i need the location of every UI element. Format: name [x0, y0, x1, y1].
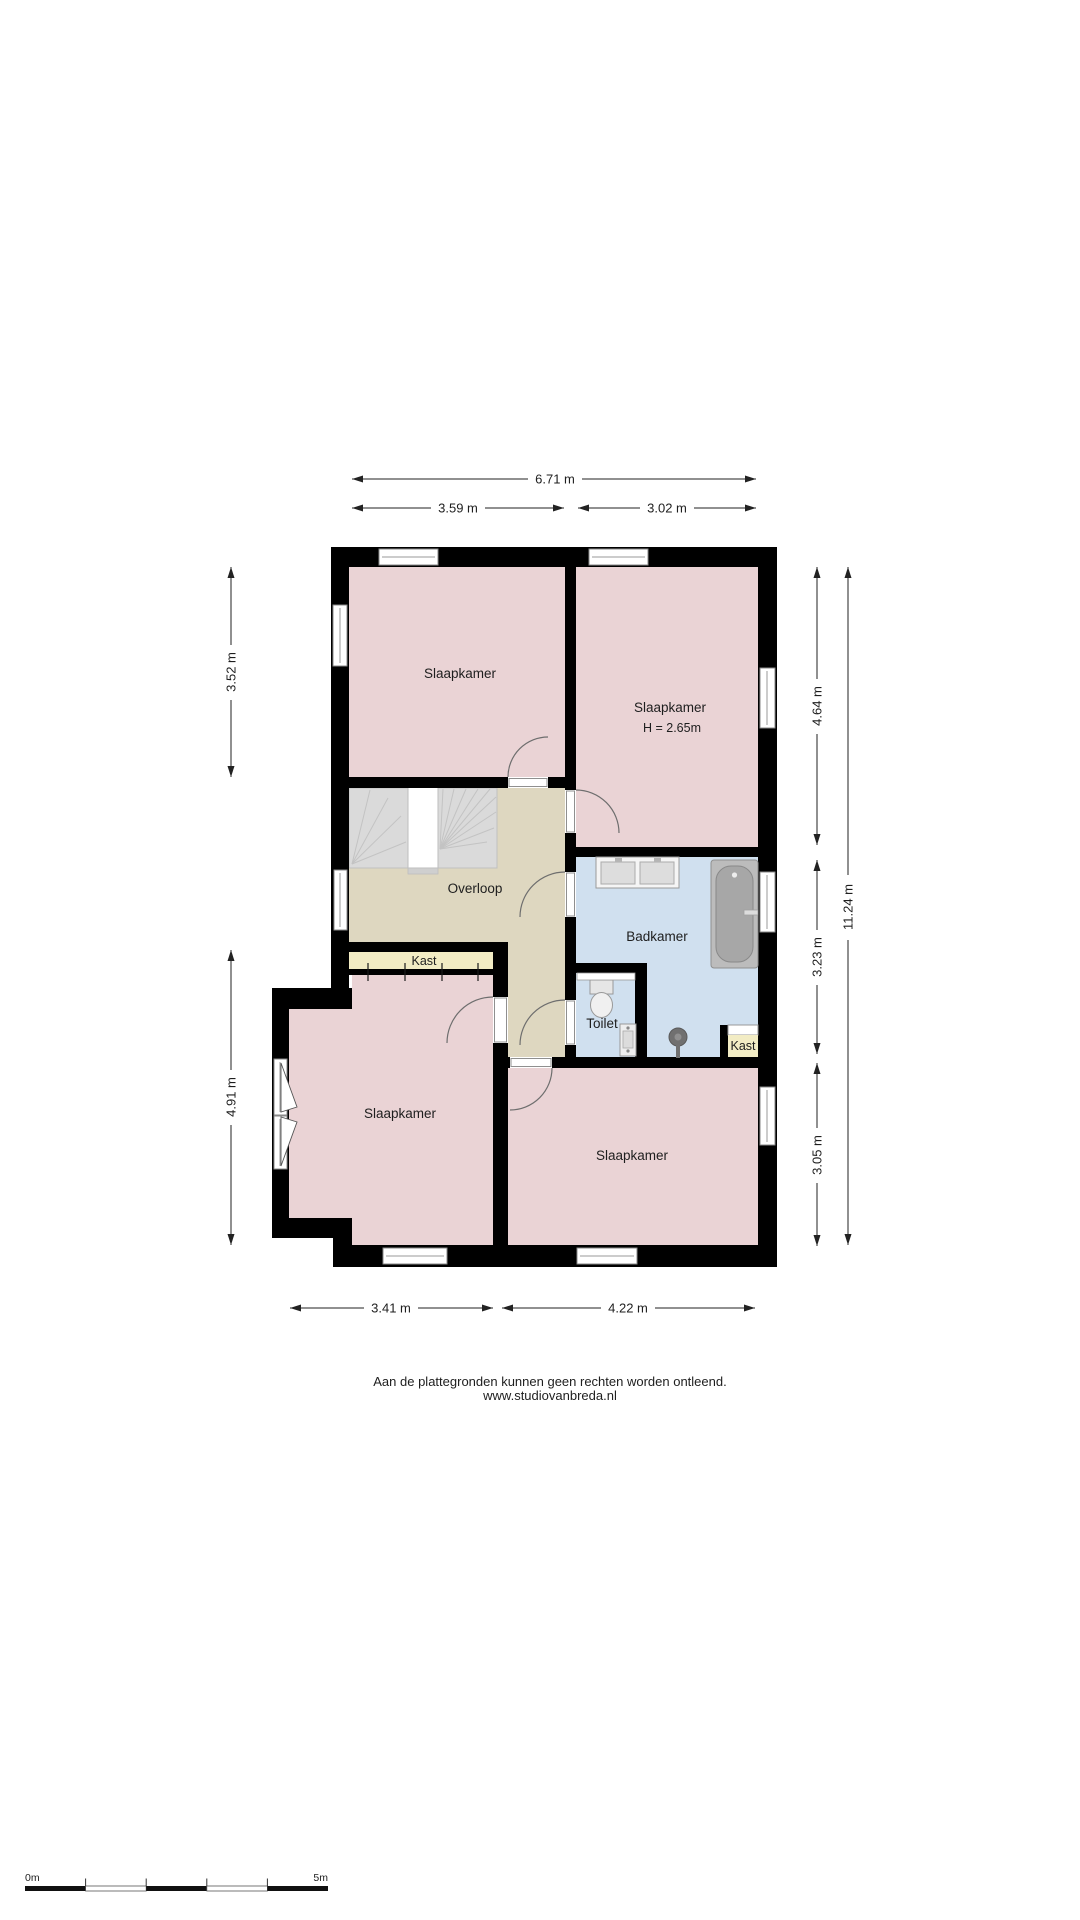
room-label-closet-hall: Kast — [411, 954, 437, 968]
window — [760, 668, 775, 728]
wall-toilet-top — [565, 963, 647, 973]
footer-website: www.studiovanbreda.nl — [482, 1388, 617, 1403]
scale-bar-end-label: 5m — [313, 1872, 328, 1884]
room-label-closet-bathroom: Kast — [730, 1039, 756, 1053]
window — [577, 1248, 637, 1264]
dimension-label-top-left: 3.59 m — [438, 501, 478, 516]
wall-toilet-right — [635, 963, 647, 1068]
window — [760, 872, 775, 932]
room-label-bedroom-top-left: Slaapkamer — [424, 666, 497, 681]
wall-closet-bathroom-left — [720, 1025, 728, 1057]
toilet-shelf — [577, 973, 635, 980]
window — [589, 549, 648, 565]
dimension-label-left-lower: 4.91 m — [224, 1077, 239, 1117]
wall-bathroom-top — [565, 847, 758, 857]
sink-icon — [596, 857, 679, 888]
floor-landing-corridor — [508, 942, 565, 1057]
scale-bar-start-label: 0m — [25, 1872, 40, 1884]
dimension-label-bottom-left: 3.41 m — [371, 1301, 411, 1316]
bathtub-icon — [711, 860, 758, 968]
floor-bedroom-bottom-left-bay — [289, 1009, 352, 1218]
stairs-icon — [349, 786, 497, 874]
floors — [289, 567, 758, 1245]
wall-closet-top — [333, 942, 508, 952]
scale-bar: 0m 5m — [25, 1872, 328, 1891]
dimension-label-top-total: 6.71 m — [535, 472, 575, 487]
stair-void — [408, 786, 438, 868]
dimension-label-right-middle: 3.23 m — [810, 937, 825, 977]
hand-basin-icon — [620, 1024, 636, 1056]
room-label-toilet: Toilet — [586, 1016, 618, 1031]
dimension-label-right-total: 11.24 m — [841, 884, 856, 930]
window — [379, 549, 438, 565]
window — [334, 870, 347, 930]
dimension-label-top-right: 3.02 m — [647, 501, 687, 516]
footer-disclaimer: Aan de plattegronden kunnen geen rechten… — [373, 1374, 726, 1389]
floor-plan-drawing: Slaapkamer Slaapkamer H = 2.65m Overloop… — [0, 0, 1080, 1920]
window — [760, 1087, 775, 1145]
dimension-label-left-upper: 3.52 m — [224, 652, 239, 692]
stair-bottom-step — [408, 868, 438, 874]
wall-left-lower — [333, 1218, 352, 1267]
room-label-bathroom: Badkamer — [626, 929, 688, 944]
wall-bedroom-divider — [493, 942, 508, 1245]
floor-plan-page: Slaapkamer Slaapkamer H = 2.65m Overloop… — [0, 0, 1080, 1920]
window — [383, 1248, 447, 1264]
room-label-landing: Overloop — [448, 881, 503, 896]
room-label-bedroom-bottom-left: Slaapkamer — [364, 1106, 437, 1121]
footer: Aan de plattegronden kunnen geen rechten… — [373, 1374, 726, 1403]
room-height-note: H = 2.65m — [643, 721, 701, 735]
dimension-label-right-upper: 4.64 m — [810, 686, 825, 726]
closet-bathroom-shelf — [728, 1025, 758, 1035]
room-label-bedroom-bottom-right: Slaapkamer — [596, 1148, 669, 1163]
toilet-icon — [590, 980, 613, 1018]
room-label-bedroom-top-right: Slaapkamer — [634, 700, 707, 715]
dimension-label-right-lower: 3.05 m — [810, 1135, 825, 1175]
dimension-label-bottom-right: 4.22 m — [608, 1301, 648, 1316]
window — [333, 605, 347, 666]
